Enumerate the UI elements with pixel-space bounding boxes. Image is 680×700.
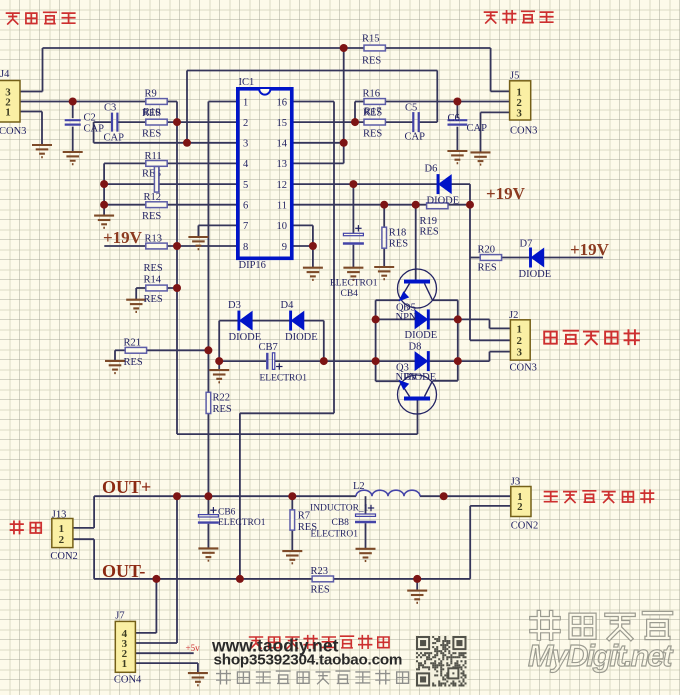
svg-text:INDUCTOR_1: INDUCTOR_1	[310, 504, 369, 514]
svg-text:14: 14	[277, 139, 288, 150]
svg-text:1: 1	[517, 323, 523, 335]
svg-text:CON3: CON3	[510, 363, 537, 374]
svg-text:CON2: CON2	[50, 551, 77, 562]
svg-text:DIODE: DIODE	[405, 330, 438, 341]
svg-text:CAP: CAP	[104, 133, 125, 144]
svg-text:DIP16: DIP16	[239, 260, 266, 271]
svg-text:R17: R17	[364, 107, 382, 118]
svg-text:7: 7	[243, 221, 248, 232]
svg-text:+5v: +5v	[186, 643, 201, 653]
svg-text:D7: D7	[520, 239, 533, 250]
svg-text:RES: RES	[363, 129, 382, 140]
svg-text:2: 2	[517, 501, 523, 513]
svg-text:4: 4	[243, 159, 249, 170]
svg-text:3: 3	[243, 139, 248, 150]
svg-text:DIODE: DIODE	[229, 332, 262, 343]
svg-text:R23: R23	[311, 566, 329, 577]
svg-text:R13: R13	[145, 234, 163, 245]
svg-text:R11: R11	[145, 151, 162, 162]
svg-text:R10: R10	[143, 107, 161, 118]
svg-text:J3: J3	[511, 476, 520, 487]
svg-text:9: 9	[282, 242, 287, 253]
svg-text:RES: RES	[362, 56, 381, 67]
svg-text:MyDigit.net: MyDigit.net	[528, 639, 674, 673]
svg-text:NPN: NPN	[396, 312, 417, 323]
svg-text:RES: RES	[142, 129, 161, 140]
svg-text:R19: R19	[420, 216, 438, 227]
svg-text:D4: D4	[281, 300, 295, 311]
svg-text:+19V: +19V	[486, 184, 526, 203]
svg-text:J7: J7	[115, 611, 124, 622]
svg-text:12: 12	[277, 180, 288, 191]
svg-text:16: 16	[277, 97, 288, 108]
svg-text:2: 2	[59, 534, 65, 546]
svg-text:CON2: CON2	[511, 520, 538, 531]
svg-text:15: 15	[277, 118, 288, 129]
svg-text:C6: C6	[448, 113, 460, 124]
svg-text:6: 6	[243, 201, 248, 212]
svg-text:OUT+: OUT+	[102, 477, 151, 497]
svg-text:CON4: CON4	[114, 675, 142, 686]
svg-text:R7: R7	[298, 511, 310, 522]
svg-text:IC1: IC1	[239, 77, 255, 88]
svg-text:RES: RES	[213, 404, 232, 415]
svg-text:1: 1	[59, 523, 65, 535]
svg-text:R12: R12	[144, 192, 162, 203]
svg-text:D3: D3	[228, 300, 241, 311]
svg-text:RES: RES	[420, 227, 439, 238]
svg-text:CB7: CB7	[259, 342, 278, 353]
svg-text:J13: J13	[52, 509, 67, 520]
svg-text:8: 8	[243, 242, 248, 253]
svg-text:CAP: CAP	[405, 132, 426, 143]
svg-text:RES: RES	[311, 585, 330, 596]
svg-text:1: 1	[5, 106, 11, 118]
svg-text:CON3: CON3	[510, 126, 537, 137]
svg-text:C2: C2	[84, 113, 96, 124]
svg-text:R21: R21	[124, 338, 142, 349]
svg-text:5: 5	[243, 180, 248, 191]
svg-text:1: 1	[243, 97, 248, 108]
svg-text:DIODE: DIODE	[519, 269, 552, 280]
svg-text:J4: J4	[0, 69, 10, 80]
svg-text:ELECTRO1: ELECTRO1	[218, 518, 266, 528]
svg-text:D8: D8	[409, 342, 422, 353]
svg-text:RES: RES	[478, 263, 497, 274]
svg-text:+19V: +19V	[103, 228, 143, 247]
svg-text:RES: RES	[144, 294, 163, 305]
svg-text:OUT-: OUT-	[102, 561, 145, 581]
svg-text:C3: C3	[104, 103, 116, 114]
svg-text:DIODE: DIODE	[285, 332, 318, 343]
svg-text:R18: R18	[389, 228, 407, 239]
svg-text:L2: L2	[353, 481, 365, 492]
svg-text:C5: C5	[405, 103, 417, 114]
svg-text:11: 11	[277, 201, 287, 212]
svg-text:RES: RES	[124, 357, 143, 368]
svg-text:R22: R22	[213, 393, 231, 404]
svg-text:2: 2	[243, 118, 248, 129]
svg-text:R20: R20	[478, 245, 496, 256]
svg-text:CAP: CAP	[84, 124, 105, 135]
svg-text:13: 13	[277, 159, 288, 170]
svg-text:J5: J5	[510, 71, 519, 82]
svg-text:3: 3	[517, 347, 523, 359]
svg-text:3: 3	[516, 107, 522, 119]
svg-text:DIODE: DIODE	[427, 195, 460, 206]
svg-text:R9: R9	[145, 89, 157, 100]
svg-text:ELECTRO1: ELECTRO1	[260, 374, 308, 384]
svg-text:ELECTRO1: ELECTRO1	[311, 530, 359, 540]
svg-text:CB8: CB8	[332, 518, 350, 528]
svg-text:CB4: CB4	[341, 289, 359, 299]
svg-text:RES: RES	[142, 211, 161, 222]
svg-text:2: 2	[517, 335, 523, 347]
svg-text:RES: RES	[144, 263, 163, 274]
svg-text:R14: R14	[144, 275, 162, 286]
svg-text:R16: R16	[363, 89, 381, 100]
svg-text:1: 1	[122, 658, 128, 670]
svg-text:J2: J2	[509, 310, 518, 321]
svg-text:+19V: +19V	[570, 240, 610, 259]
svg-text:R15: R15	[362, 34, 380, 45]
svg-text:D6: D6	[425, 164, 438, 175]
svg-text:ELECTRO1: ELECTRO1	[330, 279, 378, 289]
svg-text:10: 10	[277, 221, 288, 232]
svg-text:RES: RES	[389, 239, 408, 250]
svg-text:DIODE: DIODE	[404, 372, 437, 383]
svg-text:shop35392304.taobao.com: shop35392304.taobao.com	[214, 652, 403, 669]
svg-text:CAP: CAP	[467, 123, 488, 134]
svg-text:CB6: CB6	[218, 508, 236, 518]
svg-text:CON3: CON3	[0, 126, 26, 137]
